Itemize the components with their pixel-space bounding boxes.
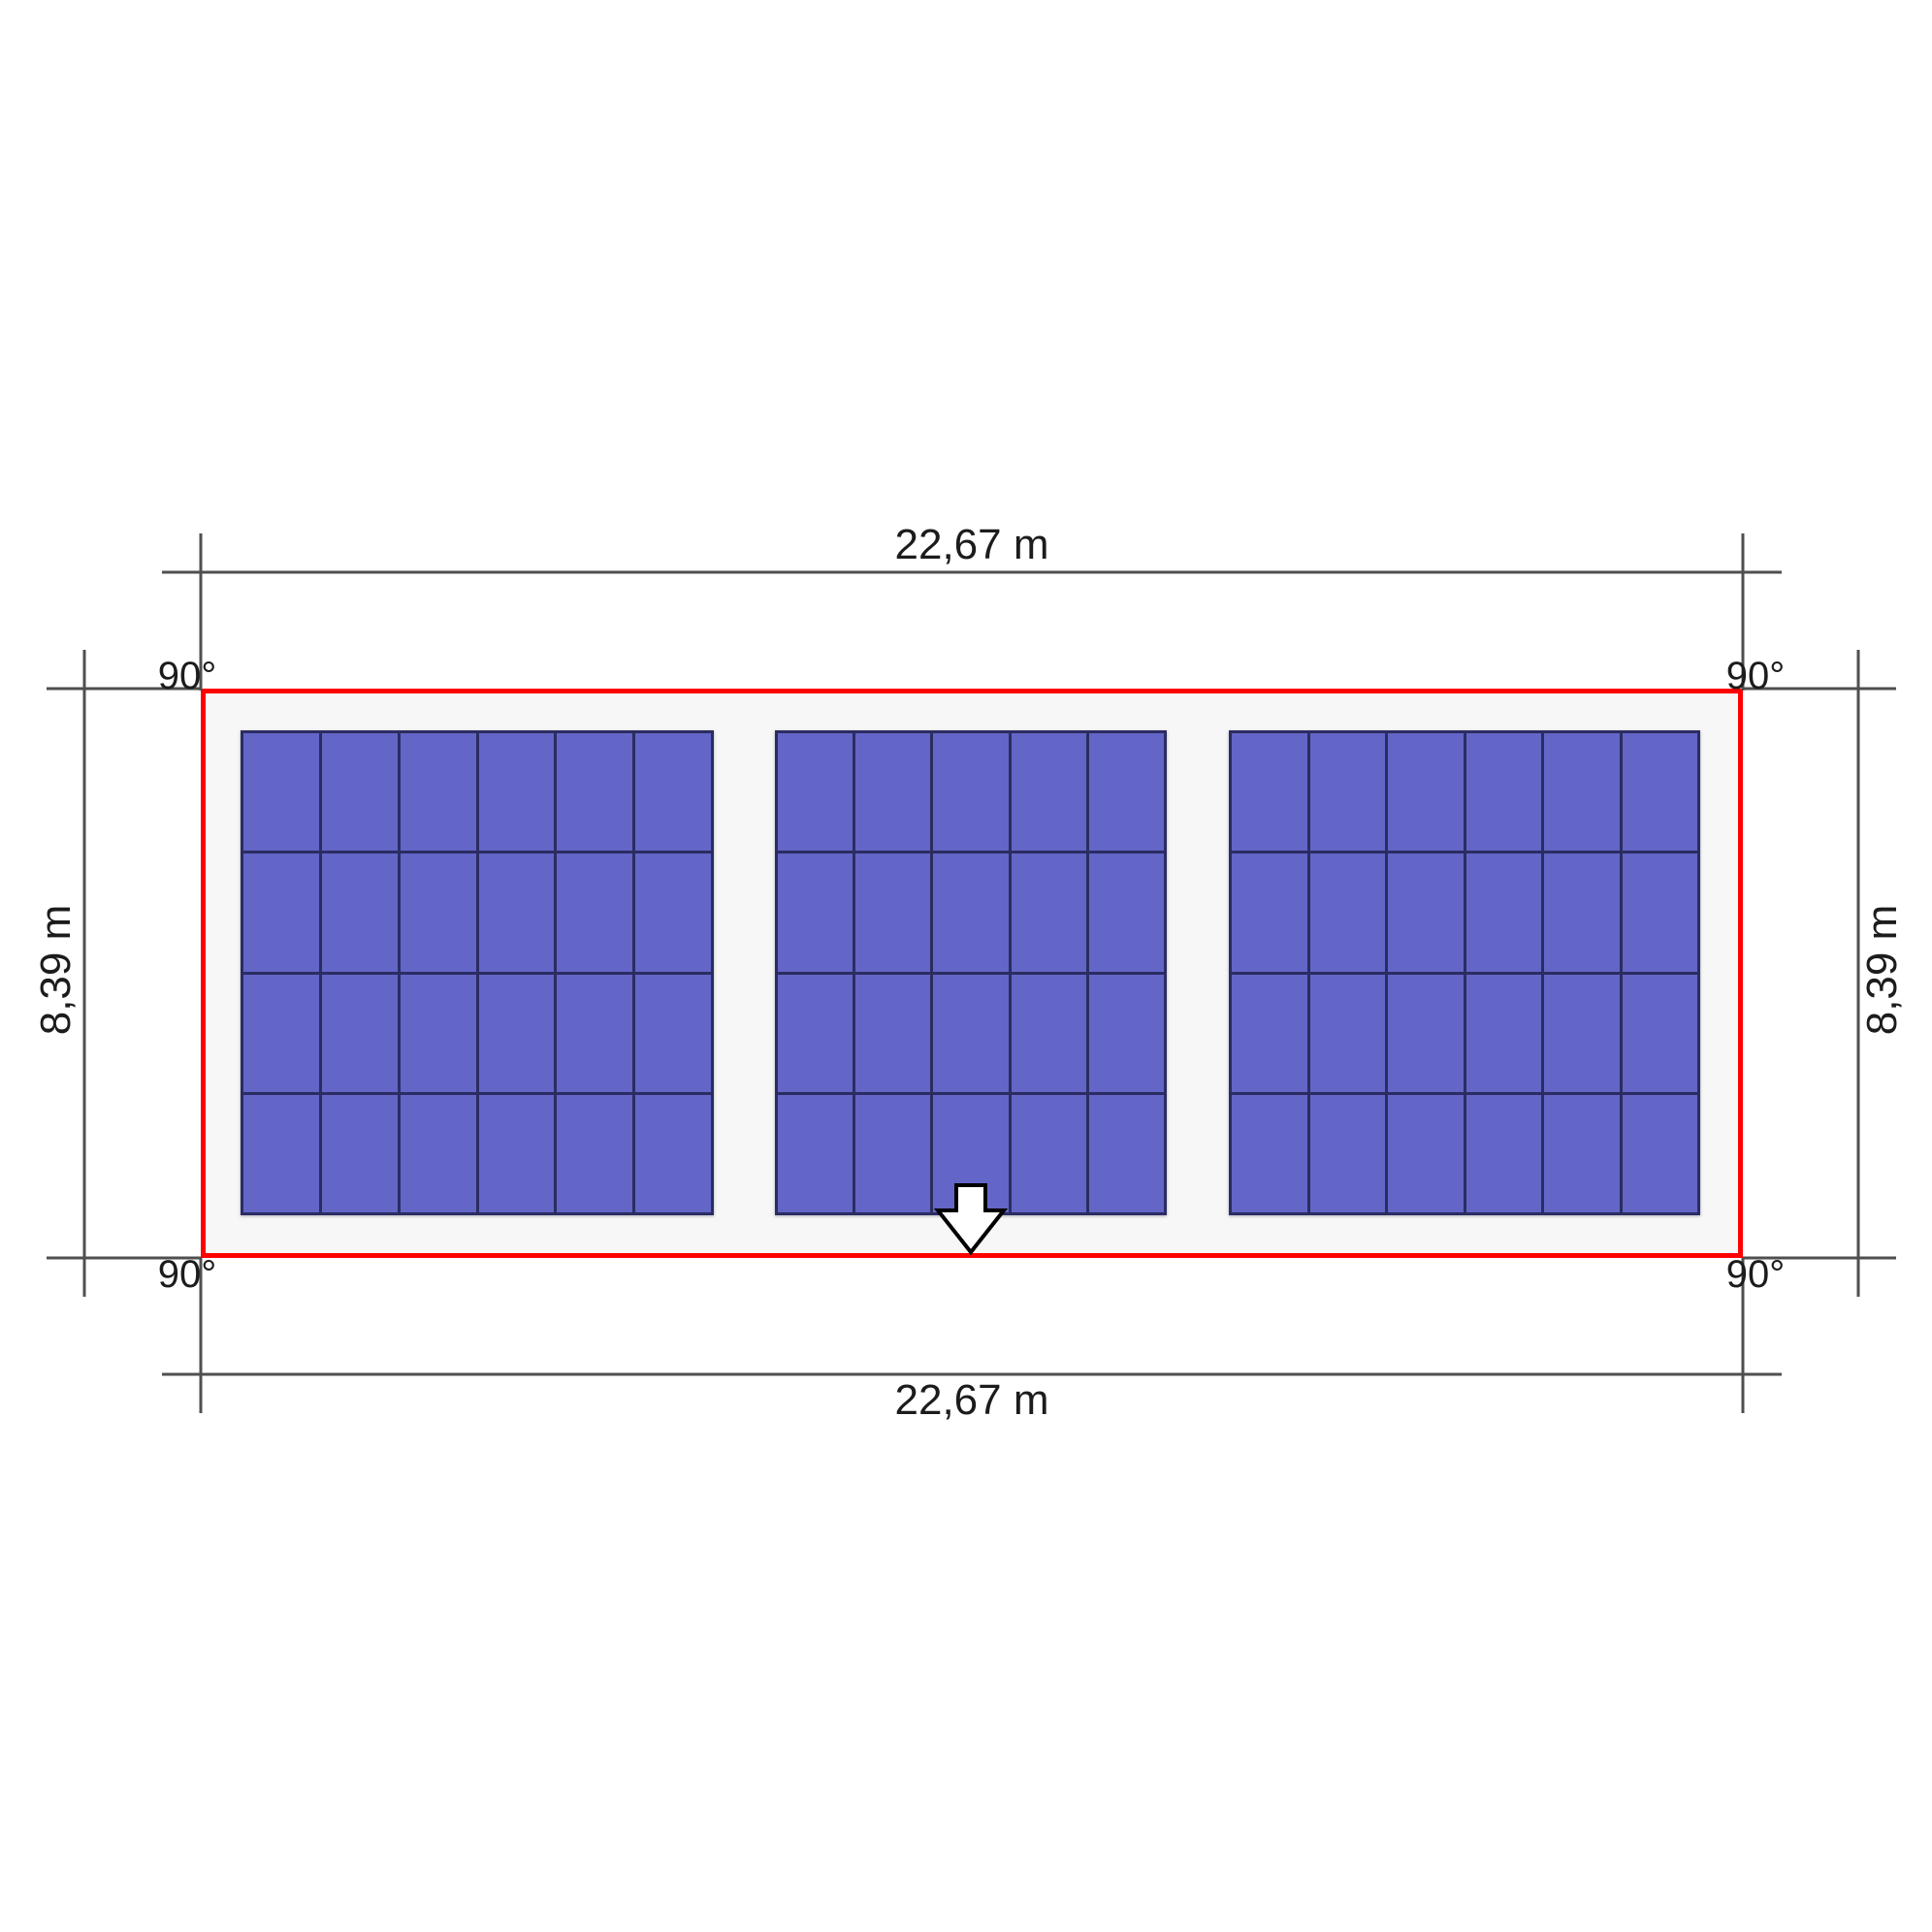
solar-panel bbox=[322, 853, 398, 971]
solar-panel bbox=[1466, 853, 1542, 971]
solar-panel bbox=[933, 733, 1008, 851]
solar-panel bbox=[1544, 853, 1620, 971]
solar-panel bbox=[243, 1095, 319, 1212]
solar-panel bbox=[1623, 975, 1698, 1092]
solar-panel bbox=[1012, 853, 1086, 971]
bottom-width-dimension-label: 22,67 m bbox=[895, 1379, 1049, 1422]
solar-panel bbox=[557, 975, 632, 1092]
solar-panel bbox=[243, 853, 319, 971]
solar-panel bbox=[243, 733, 319, 851]
solar-panel bbox=[1623, 733, 1698, 851]
solar-panel bbox=[778, 975, 853, 1092]
panel-array-left bbox=[241, 730, 714, 1215]
solar-panel bbox=[635, 853, 711, 971]
angle-label-top-right: 90° bbox=[1726, 657, 1786, 695]
solar-panel bbox=[1089, 975, 1164, 1092]
solar-panel bbox=[855, 733, 930, 851]
solar-panel bbox=[1544, 1095, 1620, 1212]
solar-panel bbox=[1012, 975, 1086, 1092]
solar-panel bbox=[1466, 733, 1542, 851]
solar-panel bbox=[855, 853, 930, 971]
solar-panel bbox=[1012, 1095, 1086, 1212]
solar-panel bbox=[933, 975, 1008, 1092]
solar-panel bbox=[479, 1095, 555, 1212]
solar-panel bbox=[1388, 853, 1464, 971]
solar-panel bbox=[1310, 975, 1386, 1092]
solar-panel bbox=[778, 733, 853, 851]
solar-panel bbox=[635, 733, 711, 851]
solar-panel bbox=[1232, 733, 1307, 851]
solar-panel bbox=[1544, 975, 1620, 1092]
solar-panel bbox=[635, 1095, 711, 1212]
solar-panel bbox=[1089, 1095, 1164, 1212]
solar-panel bbox=[1388, 733, 1464, 851]
solar-panel bbox=[1089, 853, 1164, 971]
solar-panel bbox=[401, 853, 476, 971]
solar-panel bbox=[401, 733, 476, 851]
angle-label-top-left: 90° bbox=[158, 657, 217, 695]
solar-panel bbox=[1310, 853, 1386, 971]
solar-panel bbox=[401, 975, 476, 1092]
solar-panel bbox=[1232, 853, 1307, 971]
solar-panel bbox=[1310, 1095, 1386, 1212]
solar-panel bbox=[557, 1095, 632, 1212]
top-width-dimension-label: 22,67 m bbox=[895, 524, 1049, 566]
solar-panel bbox=[778, 1095, 853, 1212]
solar-panel bbox=[243, 975, 319, 1092]
solar-panel bbox=[401, 1095, 476, 1212]
solar-panel bbox=[557, 733, 632, 851]
solar-panel bbox=[855, 975, 930, 1092]
solar-panel bbox=[933, 853, 1008, 971]
down-arrow-icon bbox=[931, 1181, 1011, 1257]
solar-panel bbox=[479, 975, 555, 1092]
solar-panel bbox=[1012, 733, 1086, 851]
panel-array-right bbox=[1229, 730, 1700, 1215]
left-height-dimension-label: 8,39 m bbox=[35, 905, 78, 1036]
solar-panel bbox=[1089, 733, 1164, 851]
right-height-dimension-label: 8,39 m bbox=[1861, 905, 1904, 1036]
solar-panel bbox=[1466, 975, 1542, 1092]
solar-panel bbox=[1388, 975, 1464, 1092]
solar-panel bbox=[1232, 1095, 1307, 1212]
solar-panel bbox=[322, 733, 398, 851]
solar-panel bbox=[1623, 853, 1698, 971]
solar-panel bbox=[1466, 1095, 1542, 1212]
solar-panel bbox=[778, 853, 853, 971]
solar-panel bbox=[322, 975, 398, 1092]
solar-panel bbox=[479, 733, 555, 851]
solar-panel bbox=[1310, 733, 1386, 851]
solar-panel bbox=[322, 1095, 398, 1212]
solar-panel bbox=[855, 1095, 930, 1212]
angle-label-bottom-right: 90° bbox=[1726, 1255, 1786, 1294]
solar-panel bbox=[1388, 1095, 1464, 1212]
solar-panel bbox=[1623, 1095, 1698, 1212]
solar-panel bbox=[479, 853, 555, 971]
roof-plan-diagram: 22,67 m 22,67 m 8,39 m 8,39 m 90° 90° 90… bbox=[0, 0, 1932, 1932]
angle-label-bottom-left: 90° bbox=[158, 1255, 217, 1294]
solar-panel bbox=[557, 853, 632, 971]
solar-panel bbox=[1232, 975, 1307, 1092]
solar-panel bbox=[1544, 733, 1620, 851]
solar-panel bbox=[635, 975, 711, 1092]
panel-array-middle bbox=[775, 730, 1167, 1215]
